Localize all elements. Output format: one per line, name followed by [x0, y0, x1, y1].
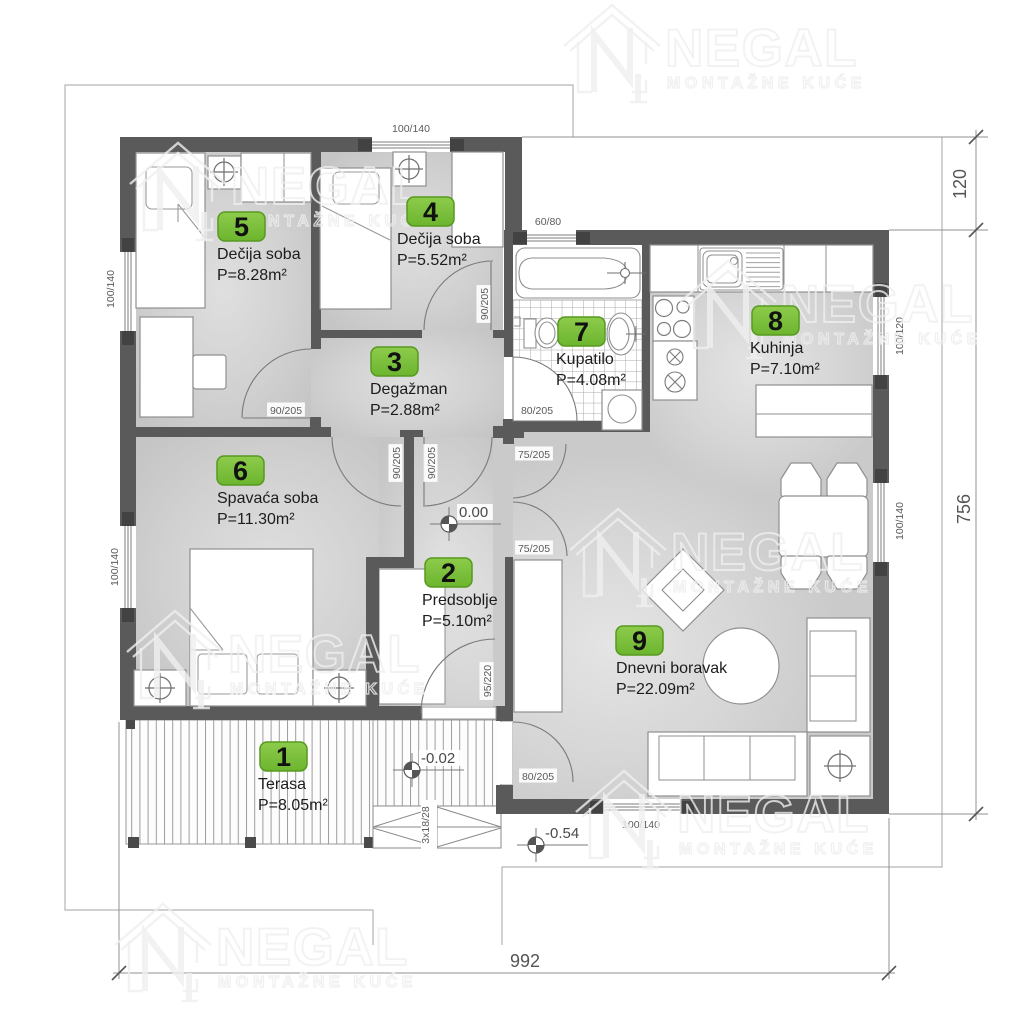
- svg-text:P=2.88m²: P=2.88m²: [370, 402, 440, 419]
- svg-text:4: 4: [423, 197, 438, 227]
- svg-text:120: 120: [950, 169, 970, 199]
- svg-text:9: 9: [632, 626, 647, 656]
- svg-text:P=22.09m²: P=22.09m²: [616, 681, 695, 698]
- svg-text:Kupatilo: Kupatilo: [556, 351, 614, 368]
- svg-text:7: 7: [574, 317, 589, 347]
- svg-text:Dnevni boravak: Dnevni boravak: [616, 660, 728, 677]
- svg-text:100/140: 100/140: [105, 270, 117, 308]
- svg-text:Degažman: Degažman: [370, 381, 447, 398]
- svg-text:90/205: 90/205: [270, 405, 302, 417]
- svg-text:80/205: 80/205: [522, 771, 554, 783]
- svg-text:100/140: 100/140: [109, 548, 121, 586]
- svg-text:90/205: 90/205: [391, 447, 403, 479]
- svg-text:5: 5: [234, 212, 249, 242]
- svg-text:P=5.52m²: P=5.52m²: [397, 252, 467, 269]
- svg-text:8: 8: [768, 306, 783, 336]
- svg-text:Spavaća soba: Spavaća soba: [217, 490, 319, 507]
- svg-text:3: 3: [387, 347, 402, 377]
- svg-text:90/205: 90/205: [479, 288, 491, 320]
- svg-text:95/220: 95/220: [482, 665, 494, 697]
- svg-text:P=8.05m²: P=8.05m²: [258, 797, 328, 814]
- svg-text:100/140: 100/140: [392, 123, 430, 135]
- svg-text:Terasa: Terasa: [258, 776, 306, 793]
- svg-text:2: 2: [441, 558, 456, 588]
- svg-text:Dečija soba: Dečija soba: [217, 246, 301, 263]
- svg-text:Predsoblje: Predsoblje: [422, 592, 498, 609]
- svg-text:3x18/28: 3x18/28: [420, 806, 432, 844]
- svg-text:992: 992: [510, 951, 540, 971]
- svg-text:75/205: 75/205: [518, 543, 550, 555]
- svg-text:90/205: 90/205: [426, 447, 438, 479]
- svg-text:-0.54: -0.54: [545, 825, 579, 842]
- svg-text:756: 756: [954, 494, 974, 524]
- svg-text:P=5.10m²: P=5.10m²: [422, 613, 492, 630]
- svg-text:80/205: 80/205: [521, 405, 553, 417]
- svg-text:6: 6: [233, 456, 248, 486]
- svg-text:P=4.08m²: P=4.08m²: [556, 372, 626, 389]
- svg-text:-0.02: -0.02: [421, 750, 455, 767]
- svg-text:60/80: 60/80: [535, 216, 561, 228]
- svg-text:1: 1: [276, 742, 291, 772]
- svg-text:100/140: 100/140: [894, 502, 906, 540]
- svg-text:75/205: 75/205: [518, 449, 550, 461]
- svg-text:P=7.10m²: P=7.10m²: [750, 361, 820, 378]
- svg-text:P=8.28m²: P=8.28m²: [217, 267, 287, 284]
- svg-text:0.00: 0.00: [459, 504, 488, 521]
- svg-text:Dečija soba: Dečija soba: [397, 231, 481, 248]
- svg-text:Kuhinja: Kuhinja: [750, 340, 803, 357]
- svg-text:P=11.30m²: P=11.30m²: [217, 511, 295, 528]
